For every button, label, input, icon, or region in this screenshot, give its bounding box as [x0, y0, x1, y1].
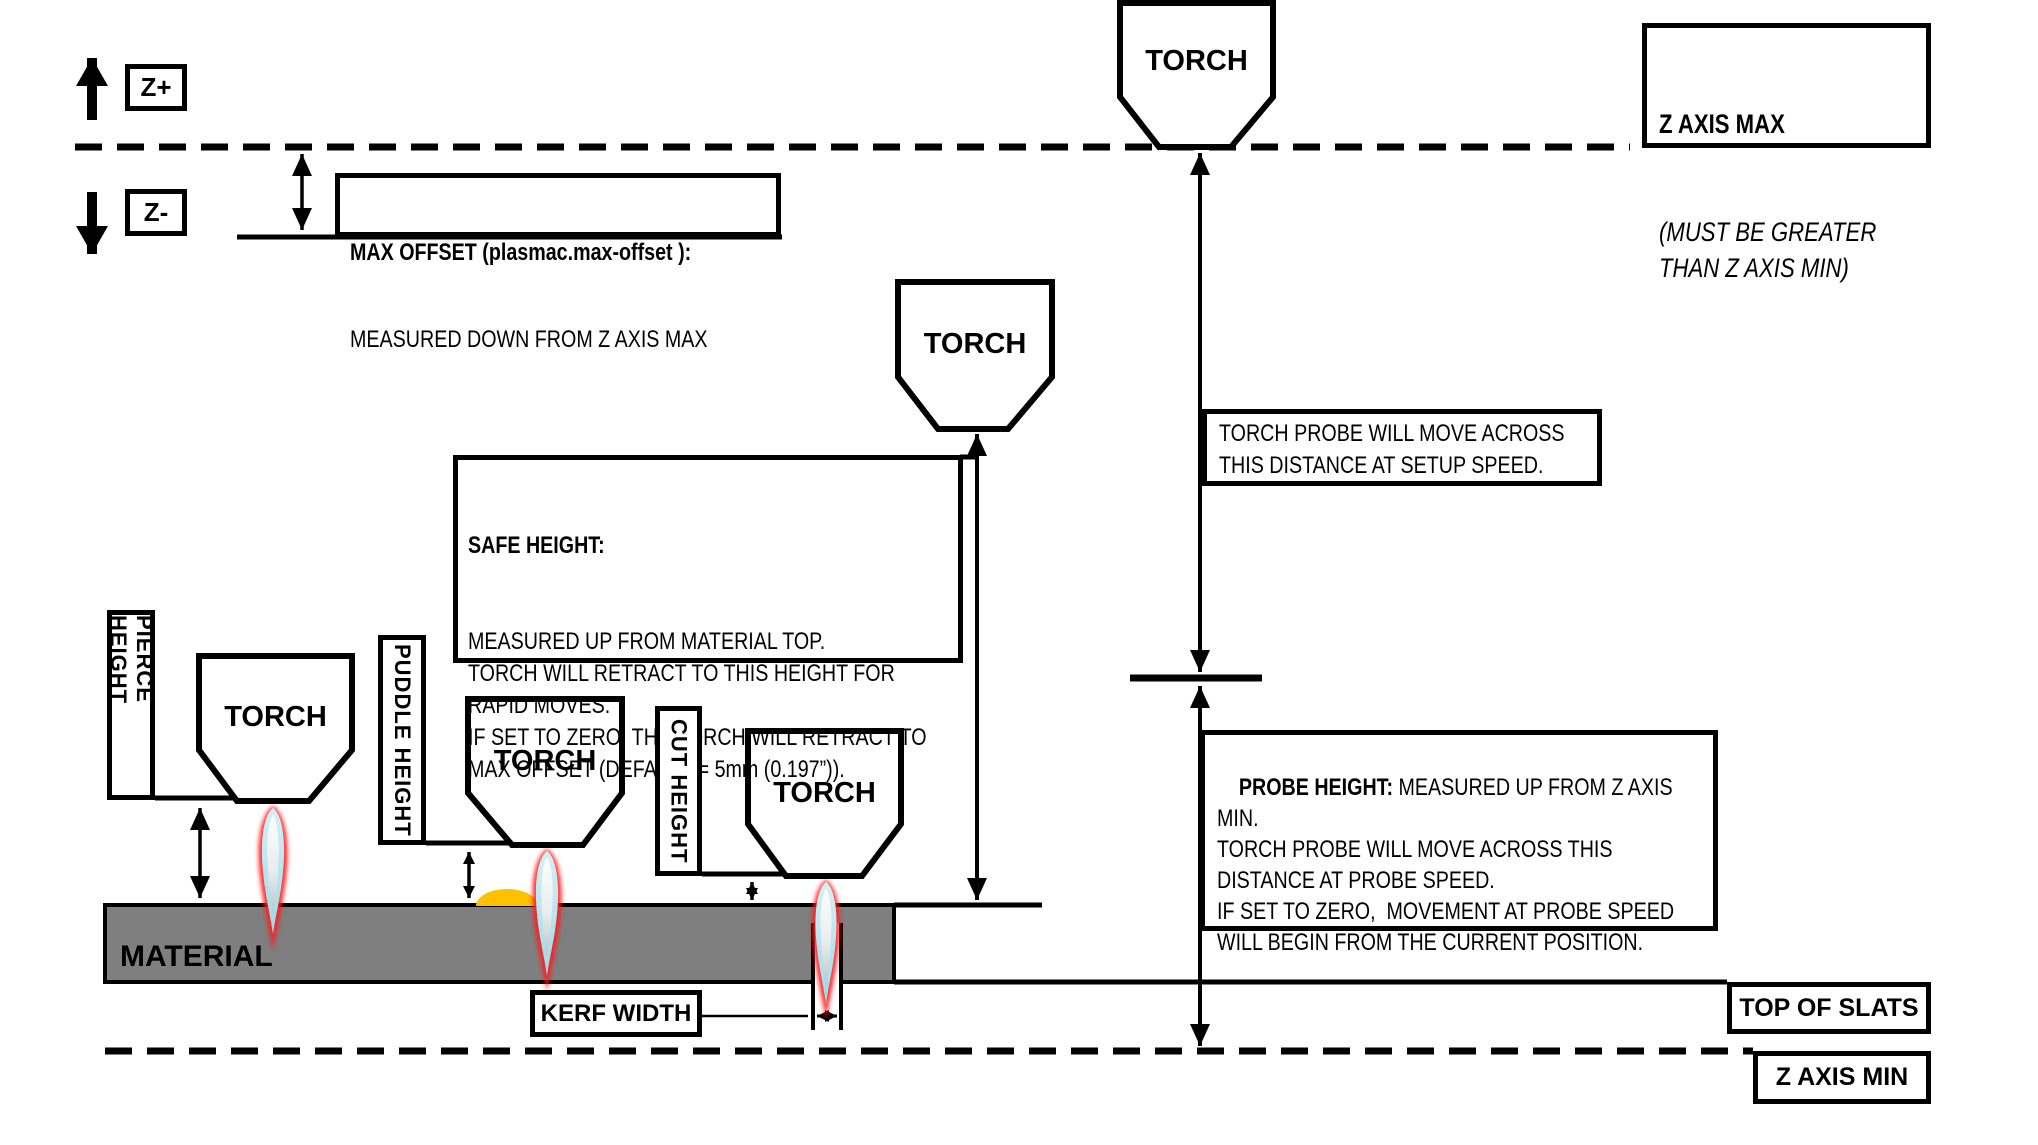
probe-height-title: PROBE HEIGHT: [1239, 774, 1393, 801]
kerf-width-callout: KERF WIDTH [530, 990, 702, 1037]
top-of-slats-label: TOP OF SLATS [1727, 982, 1931, 1034]
z-axis-max-callout: Z AXIS MAX (MUST BE GREATER THAN Z AXIS … [1642, 23, 1931, 148]
torch-1-label: TORCH [1120, 45, 1273, 78]
z-axis-max-body: (MUST BE GREATER THAN Z AXIS MIN) [1659, 214, 1868, 286]
pierce-height-label: PIERCE HEIGHT [107, 610, 155, 800]
probe-height-callout: PROBE HEIGHT: MEASURED UP FROM Z AXIS MI… [1200, 730, 1718, 931]
torch-probe-body: TORCH PROBE WILL MOVE ACROSS THIS DISTAN… [1219, 418, 1519, 482]
molten-puddle [476, 889, 538, 906]
max-offset-callout: MAX OFFSET (plasmac.max-offset ): MEASUR… [335, 173, 781, 237]
max-offset-title: MAX OFFSET (plasmac.max-offset ): [350, 238, 691, 267]
torch-3-label: TORCH [199, 701, 352, 734]
safe-height-callout: SAFE HEIGHT: MEASURED UP FROM MATERIAL T… [453, 455, 963, 663]
puddle-height-label: PUDDLE HEIGHT [378, 635, 426, 845]
z-plus-label-box: Z+ [125, 64, 187, 111]
z-minus-label-box: Z- [125, 189, 187, 236]
cut-height-label: CUT HEIGHT [655, 706, 702, 876]
material-label: MATERIAL [120, 940, 273, 974]
torch-probe-callout: TORCH PROBE WILL MOVE ACROSS THIS DISTAN… [1202, 409, 1602, 486]
torch-2-label: TORCH [898, 328, 1052, 361]
plasmac-heights-diagram: TORCH TORCH TORCH TORCH TORCH Z+ Z- MAX … [0, 0, 2038, 1145]
safe-height-title: SAFE HEIGHT: [468, 530, 862, 562]
z-axis-min-label: Z AXIS MIN [1753, 1051, 1931, 1104]
probe-height-body: MEASURED UP FROM Z AXIS MIN. TORCH PROBE… [1217, 774, 1674, 956]
max-offset-body: MEASURED DOWN FROM Z AXIS MAX [350, 325, 691, 354]
z-axis-max-title: Z AXIS MAX [1659, 106, 1868, 142]
